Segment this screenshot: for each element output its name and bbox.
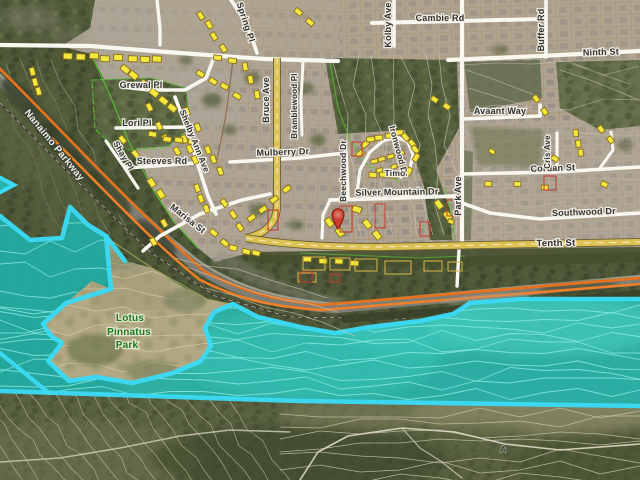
svg-text:Cris Ave: Cris Ave bbox=[543, 135, 552, 169]
svg-text:Pinnatus: Pinnatus bbox=[107, 327, 151, 338]
svg-text:Mulberry Dr: Mulberry Dr bbox=[256, 146, 309, 158]
svg-text:Lotus: Lotus bbox=[116, 313, 144, 324]
svg-text:Park: Park bbox=[116, 340, 139, 351]
svg-text:Silver Mountain Dr: Silver Mountain Dr bbox=[355, 186, 439, 197]
svg-text:Cordan St: Cordan St bbox=[530, 162, 575, 174]
svg-text:Lori Pl: Lori Pl bbox=[122, 118, 151, 128]
svg-text:Steeves Rd: Steeves Rd bbox=[137, 156, 188, 166]
svg-text:Ninth St: Ninth St bbox=[583, 46, 619, 57]
svg-text:Timo: Timo bbox=[385, 168, 406, 178]
svg-text:Park Ave: Park Ave bbox=[453, 176, 463, 215]
svg-text:Bramblewood Pl: Bramblewood Pl bbox=[290, 73, 299, 138]
svg-text:Tenth St: Tenth St bbox=[536, 238, 576, 250]
svg-text:Bruce Ave: Bruce Ave bbox=[261, 77, 271, 123]
svg-text:Avaant Way: Avaant Way bbox=[474, 106, 526, 116]
svg-text:Grewal Pl: Grewal Pl bbox=[120, 80, 163, 90]
svg-text:A: A bbox=[500, 445, 506, 454]
svg-text:Kolby Ave: Kolby Ave bbox=[383, 2, 393, 47]
svg-text:Beechwood Dr: Beechwood Dr bbox=[338, 140, 348, 202]
svg-text:Buffer Rd: Buffer Rd bbox=[536, 9, 546, 52]
svg-text:Cambie Rd: Cambie Rd bbox=[416, 13, 465, 23]
